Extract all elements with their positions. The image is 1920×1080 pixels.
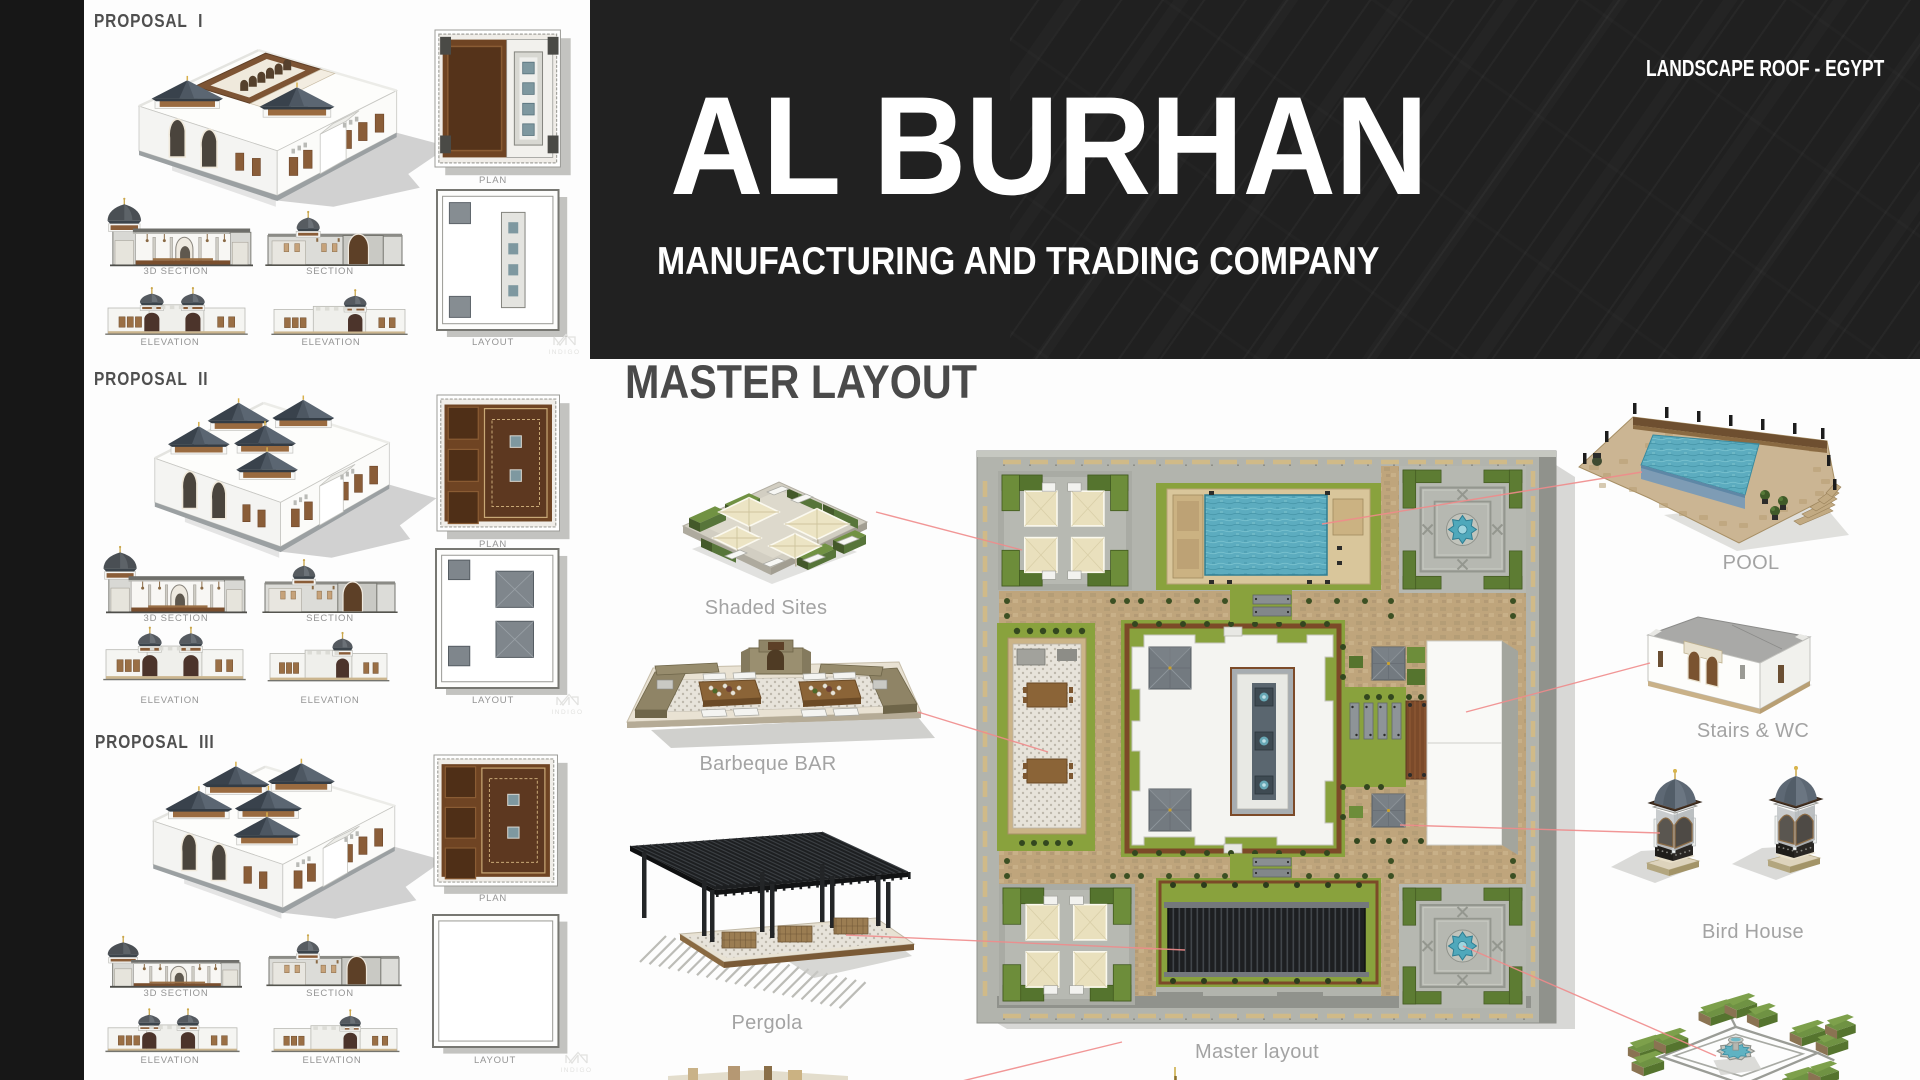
svg-text:INDIGO: INDIGO <box>551 709 583 716</box>
svg-text:INDIGO: INDIGO <box>548 349 580 356</box>
svg-text:INDIGO: INDIGO <box>560 1067 592 1074</box>
